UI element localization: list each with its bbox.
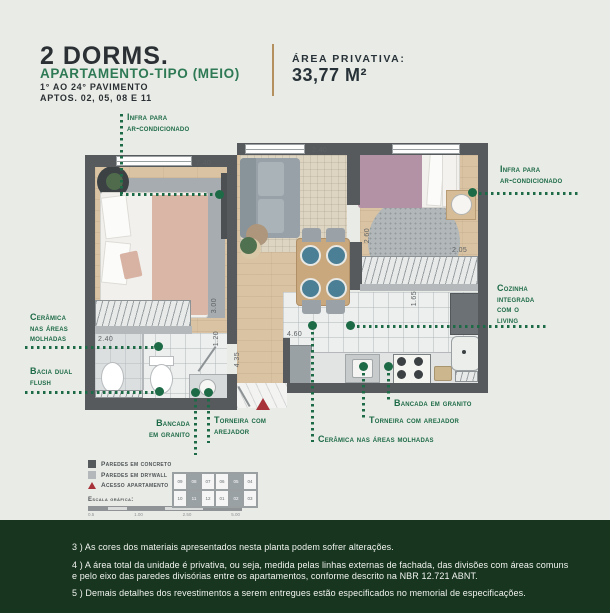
keyplan-unit: 11 [187,490,201,507]
footer-note-4: 4 ) A área total da unidade é privativa,… [72,560,572,582]
dim-bedroom1-depth: 3.00 [211,298,218,313]
legend-label: Acesso apartamento [101,482,168,489]
wall-living-bedroom2-top [347,143,360,205]
floor-plan: 2.40 2.40 2.40 2.05 2.60 3.00 1.20 1.65 … [0,0,610,520]
footer-notes: 3 ) As cores dos materiais apresentados … [0,520,610,613]
bedroom2-blanket [358,148,422,208]
footer-note-3: 3 ) As cores dos materiais apresentados … [72,542,572,553]
scale-ticks: 0.5 1.00 2.50 5.00 [88,512,240,517]
access-triangle-icon [88,482,96,489]
callout-torneira-left: Torneira com arejador [214,415,266,436]
callout-bancada-left: Bancada em granito [138,418,190,439]
wall-left-outer [85,155,95,410]
dim-bedroom1-width: 2.40 [196,160,211,167]
legend-label: Paredes em concreto [101,461,172,468]
keyplan-bottom-row: 10 11 12 01 02 03 [173,490,257,507]
stove-burner [414,357,423,366]
kitchen-tub-drain [462,350,466,354]
shower-sink [101,362,124,393]
kitchen-tub-sink [451,336,480,371]
dining-plate [300,245,321,266]
kitchen-cabinet [289,345,312,384]
keyplan-unit: 07 [201,473,215,490]
callout-dot [308,321,317,330]
keyplan-unit: 09 [173,473,187,490]
callout-bacia-dual-flush: Bacia dual flush [30,366,72,387]
sofa-cushion [258,162,284,196]
callout-dot [346,321,355,330]
callout-line [207,399,210,443]
dining-plate [300,278,321,299]
callout-dot [215,190,224,199]
legend-label: Paredes em drywall [101,472,167,479]
fridge [450,293,480,335]
scale-segment [108,507,127,510]
callout-ac-left: Infra para ar-condicionado [127,112,189,133]
callout-torneira-right: Torneira com arejador [369,415,459,426]
callout-dot [191,388,200,397]
bedroom2-window [392,144,460,154]
building-keyplan: 09 08 07 06 05 04 10 11 12 01 02 03 [172,472,258,508]
callout-dot [384,362,393,371]
wall-bath-hall-upper [227,330,237,344]
callout-line [120,193,218,196]
scale-segment [89,507,108,510]
dim-bedroom2-width: 2.05 [452,247,467,254]
callout-line [311,332,314,442]
dining-chair [302,228,321,242]
dining-chair [326,300,345,314]
callout-dot [468,188,477,197]
dining-plate [326,245,347,266]
callout-line [362,373,365,419]
callout-line [25,346,155,349]
callout-ac-right: Infra para ar-condicionado [500,164,562,185]
stove-burner [397,357,406,366]
scale-tick: 5.00 [231,512,240,517]
keyplan-unit: 04 [243,473,257,490]
wall-living-bedroom2-bottom [350,242,362,290]
keyplan-unit: 06 [215,473,229,490]
callout-line [120,114,123,194]
callout-ceramica-bottom: Cerâmica nas áreas molhadas [318,434,434,445]
dim-kitchen-depth: 1.65 [411,291,418,306]
keyplan-unit: 10 [173,490,187,507]
keyplan-unit: 03 [243,490,257,507]
dining-chair [326,228,345,242]
callout-line [25,391,156,394]
apartment-access-marker [256,398,270,410]
bedroom1-blanket [152,195,208,315]
callout-dot [359,362,368,371]
callout-line [194,399,197,455]
dining-chair [302,300,321,314]
living-window [245,144,305,154]
callout-dot [204,388,213,397]
scale-tick: 0.5 [88,512,94,517]
wall-bedroom1-bath-drywall [95,326,192,334]
bedroom1-window [116,156,192,166]
bedroom2-wardrobe [358,256,478,285]
callout-line [479,192,579,195]
stove-burner [397,370,406,379]
kitchen-appliance [434,366,452,381]
footer-note-5: 5 ) Demais detalhes dos revestimentos a … [72,588,572,599]
callout-cozinha-integrada: Cozinha integrada com o living [497,283,534,325]
dim-bath-depth: 1.20 [213,331,220,346]
scale-tick: 2.50 [183,512,192,517]
wall-left-bottom [85,398,237,410]
dim-living-width: 2.40 [312,147,327,154]
scale-segment [127,507,165,510]
keyplan-unit: 05 [229,473,243,490]
scale-tick: 1.00 [134,512,143,517]
bedroom1-pillow [101,195,132,240]
dim-bath-width: 2.40 [98,336,113,343]
dim-kitchen-width: 4.60 [287,331,302,338]
legend-item-concrete: Paredes em concreto [88,460,242,468]
keyplan-unit: 02 [229,490,243,507]
callout-ceramica-left: Cerâmica nas áreas molhadas [30,312,68,344]
keyplan-unit: 01 [215,490,229,507]
callout-bancada-right: Bancada em granito [394,398,472,409]
keyplan-unit: 12 [201,490,215,507]
wall-bedroom2-kitchen-drywall [360,284,478,291]
keyplan-unit: 08 [187,473,201,490]
callout-line [387,373,390,403]
wall-bedroom1-living [227,155,237,330]
bedroom1-wardrobe [95,300,191,328]
wall-right-outer [478,143,488,393]
stove-burner [414,370,423,379]
wall-bath-hall-lower [227,374,237,398]
dining-plate [326,278,347,299]
callout-dot [155,387,164,396]
living-plant [240,237,257,254]
callout-dot [154,342,163,351]
kitchen-threshold [455,371,478,382]
floorplan-page: 2 DORMS. APARTAMENTO-TIPO (MEIO) 1° AO 2… [0,0,610,613]
dim-bedroom2-depth: 2.60 [364,228,371,243]
keyplan-top-row: 09 08 07 06 05 04 [173,473,257,490]
dim-hall-depth: 4.35 [234,352,241,367]
wall-hall-kitchen-stub [283,338,290,383]
drywall-swatch [88,471,96,479]
bedroom2-lamp [451,194,472,215]
concrete-swatch [88,460,96,468]
